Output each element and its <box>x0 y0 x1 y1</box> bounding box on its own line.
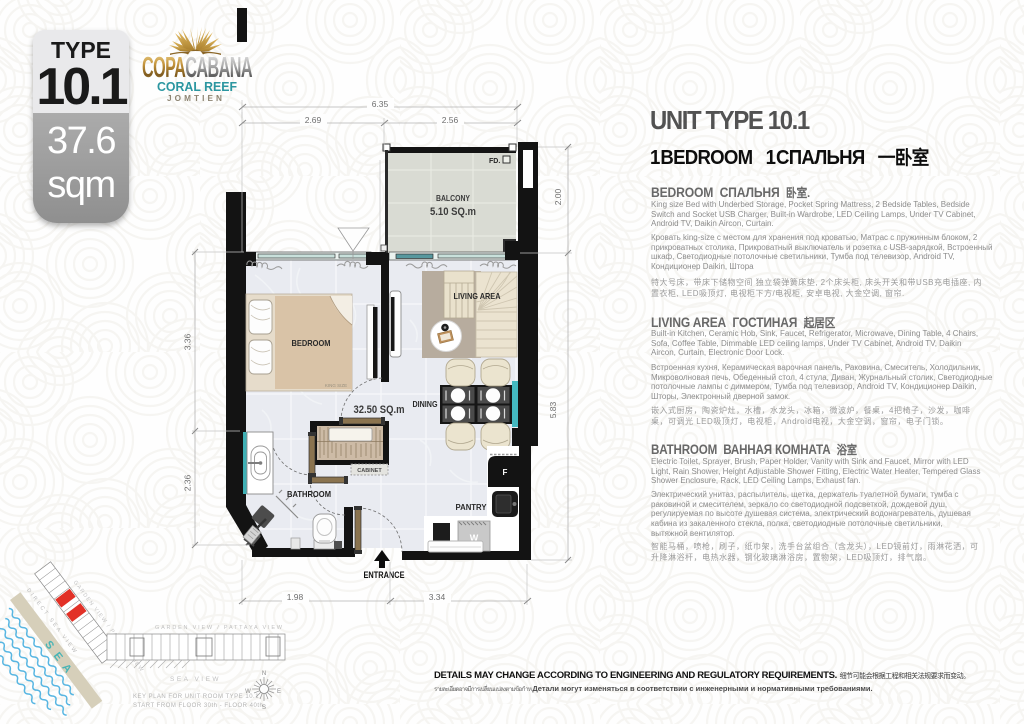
svg-text:S: S <box>262 705 266 711</box>
svg-text:5.10 SQ.m: 5.10 SQ.m <box>430 206 476 218</box>
svg-text:2.00: 2.00 <box>553 188 563 205</box>
svg-text:E: E <box>277 689 281 695</box>
svg-text:PANTRY: PANTRY <box>456 503 488 512</box>
svg-text:1.98: 1.98 <box>287 592 304 602</box>
svg-text:KING SIZE: KING SIZE <box>325 383 347 388</box>
svg-text:2.69: 2.69 <box>305 115 322 125</box>
svg-text:6.35: 6.35 <box>372 99 389 109</box>
svg-text:W: W <box>245 689 251 695</box>
svg-text:CABINET: CABINET <box>357 468 382 474</box>
svg-text:SEA VIEW: SEA VIEW <box>170 676 221 683</box>
svg-text:FD.: FD. <box>489 158 500 165</box>
svg-text:BEDROOM: BEDROOM <box>292 338 331 348</box>
svg-text:3.34: 3.34 <box>429 592 446 602</box>
svg-text:KEY PLAN FOR UNIT ROOM TYPE 10: KEY PLAN FOR UNIT ROOM TYPE 10.1 <box>133 694 259 700</box>
svg-text:2.36: 2.36 <box>183 474 193 491</box>
svg-text:BALCONY: BALCONY <box>436 193 470 203</box>
svg-text:DINING: DINING <box>413 400 438 409</box>
svg-text:2.56: 2.56 <box>442 115 459 125</box>
svg-text:N: N <box>262 671 266 677</box>
svg-text:START FROM FLOOR 30th - FLOOR: START FROM FLOOR 30th - FLOOR 40th <box>133 703 263 709</box>
svg-text:32.50 SQ.m: 32.50 SQ.m <box>354 404 405 416</box>
svg-text:5.83: 5.83 <box>548 401 558 418</box>
svg-text:ENTRANCE: ENTRANCE <box>364 570 405 580</box>
svg-text:F: F <box>503 468 508 477</box>
svg-text:BATHROOM: BATHROOM <box>287 489 331 499</box>
svg-text:LIVING AREA: LIVING AREA <box>454 291 501 301</box>
svg-text:3.36: 3.36 <box>183 333 193 350</box>
svg-text:GARDEN VIEW / PATTAYA VIEW: GARDEN VIEW / PATTAYA VIEW <box>155 625 284 631</box>
